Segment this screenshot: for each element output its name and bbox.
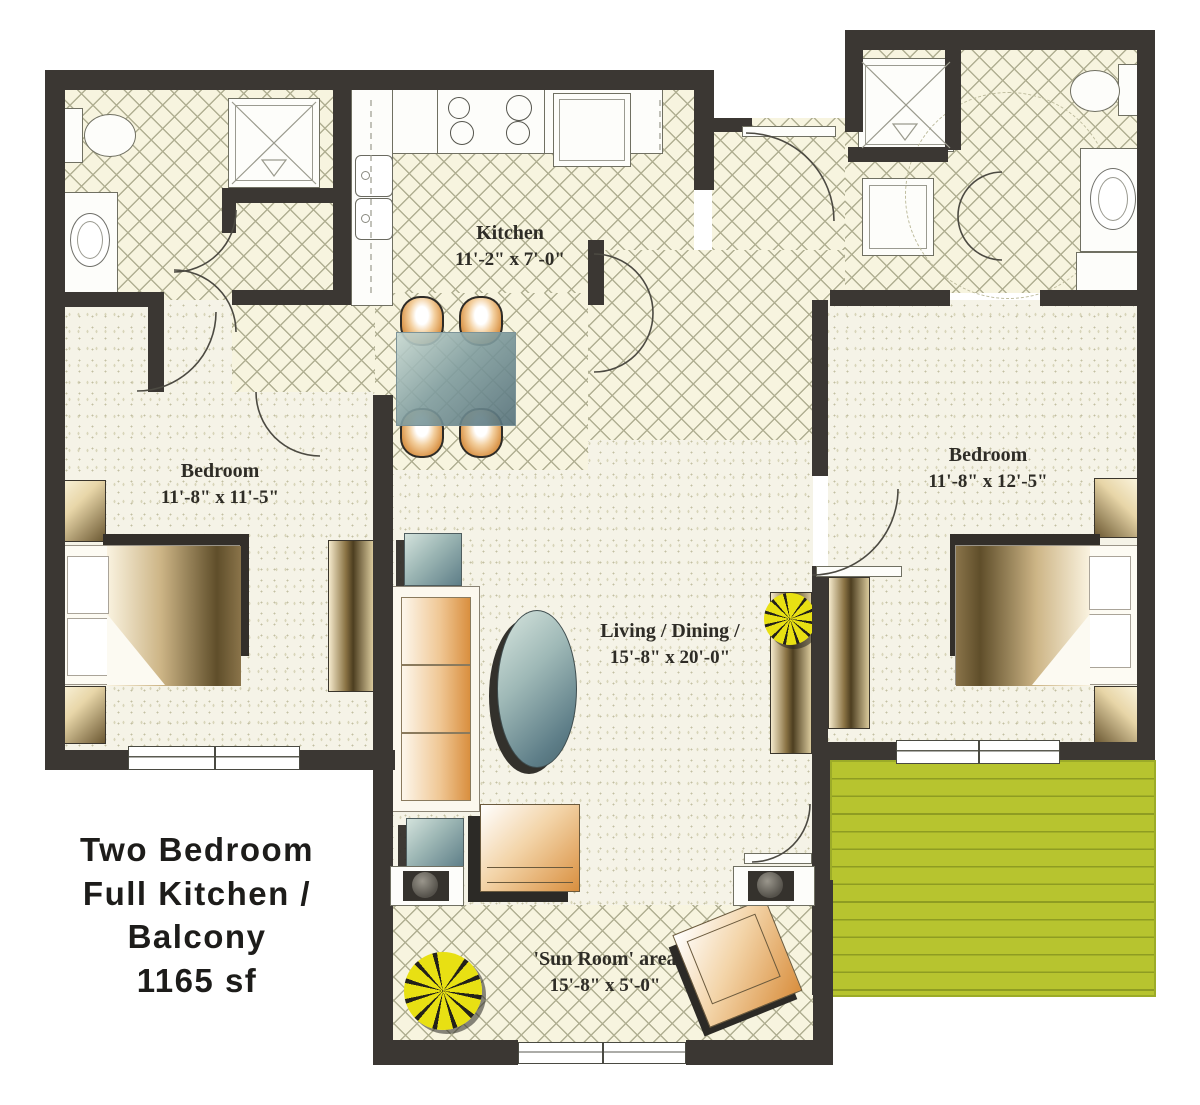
wall: [812, 742, 898, 760]
post-cap: [757, 872, 783, 898]
room-dims: 11'-2" x 7'-0": [400, 247, 620, 273]
window: [518, 1042, 686, 1064]
pillow: [1089, 556, 1131, 610]
drain: [361, 171, 370, 180]
armchair: [480, 804, 580, 892]
sink-right: [1090, 168, 1136, 230]
wall: [945, 50, 961, 150]
sofa-cushion: [401, 733, 471, 801]
wall: [373, 395, 393, 1065]
kitchen-sink-bowl: [355, 155, 393, 197]
balcony-deck: [830, 760, 1156, 997]
door-leaf: [816, 566, 902, 577]
title-line-4: 1165 sf: [42, 959, 352, 1003]
pillow: [67, 618, 109, 676]
room-name: Kitchen: [400, 220, 620, 247]
sun-room-label: 'Sun Room' area 15'-8" x 5'-0": [490, 946, 720, 999]
blanket-fold: [107, 614, 165, 685]
nightstand: [1094, 478, 1140, 538]
wall: [686, 1040, 833, 1065]
wall: [830, 290, 950, 306]
door-leaf: [744, 853, 812, 864]
window-mullion: [602, 1043, 604, 1063]
room-dims: 11'-8" x 12'-5": [878, 469, 1098, 495]
column-post: [403, 871, 449, 901]
burner: [448, 97, 470, 119]
room-name: Bedroom: [878, 442, 1098, 469]
room-dims: 15'-8" x 20'-0": [555, 645, 785, 671]
armchair-seat-line: [487, 867, 573, 883]
end-table: [406, 818, 464, 868]
sun-room-sill-right: [733, 866, 815, 906]
wall: [222, 203, 236, 233]
wall: [1137, 30, 1155, 760]
plant-sun-room: [404, 952, 482, 1030]
plan-title: Two Bedroom Full Kitchen / Balcony 1165 …: [42, 828, 352, 1002]
bedroom-right-label: Bedroom 11'-8" x 12'-5": [878, 442, 1098, 495]
wall: [60, 292, 155, 307]
drain: [361, 214, 370, 223]
blanket-fold: [1032, 614, 1090, 685]
door-leaf: [742, 126, 836, 137]
dining-table: [396, 332, 516, 426]
toilet-tank: [63, 108, 83, 163]
wall: [812, 566, 828, 762]
wall: [45, 70, 65, 770]
sofa-cushion: [401, 597, 471, 665]
room-dims: 11'-8" x 11'-5": [110, 485, 330, 511]
room-name: Bedroom: [110, 458, 330, 485]
burner: [506, 95, 532, 121]
refrigerator: [553, 93, 631, 167]
wall: [222, 188, 334, 203]
refrigerator-inner: [559, 99, 625, 161]
pillow: [67, 556, 109, 614]
sun-room-sill-left: [390, 866, 464, 906]
burner: [506, 121, 530, 145]
kitchen-label: Kitchen 11'-2" x 7'-0": [400, 220, 620, 273]
sofa-cushion: [401, 665, 471, 733]
floor-plan: Kitchen 11'-2" x 7'-0" Bedroom 11'-8" x …: [0, 0, 1200, 1105]
sink-basin: [1098, 177, 1128, 221]
bed-right: [955, 545, 1140, 685]
toilet-bowl: [1070, 70, 1120, 112]
title-line-3: Balcony: [42, 915, 352, 959]
shower-left: [228, 98, 320, 188]
window-mullion: [214, 747, 216, 769]
bedroom-left-label: Bedroom 11'-8" x 11'-5": [110, 458, 330, 511]
sink-left: [70, 213, 110, 267]
shower-pan: [235, 105, 313, 181]
window: [896, 740, 1060, 764]
post-cap: [412, 872, 438, 898]
window: [128, 746, 300, 770]
room-name: Living / Dining /: [555, 618, 785, 645]
kitchen-sink-bowl: [355, 198, 393, 240]
wall: [333, 88, 351, 305]
title-line-1: Two Bedroom: [42, 828, 352, 872]
room-name: 'Sun Room' area: [490, 946, 720, 973]
bed-left: [58, 545, 240, 685]
burner: [450, 121, 474, 145]
wall: [848, 147, 948, 162]
stove: [437, 88, 545, 154]
kitchen-counter-left: [351, 88, 393, 306]
vestibule-floor: [232, 298, 375, 392]
nightstand: [1094, 686, 1140, 744]
wall: [1040, 290, 1140, 306]
sofa: [392, 586, 480, 812]
dresser-right-bedroom: [828, 577, 870, 729]
hall-to-living-floor: [588, 250, 845, 440]
wall: [45, 70, 710, 90]
pillow: [1089, 614, 1131, 668]
wall: [813, 880, 833, 1065]
wall: [373, 1040, 518, 1065]
wall: [845, 30, 1155, 50]
end-table: [404, 533, 462, 586]
living-dining-label: Living / Dining / 15'-8" x 20'-0": [555, 618, 785, 671]
toilet-bowl: [84, 114, 136, 157]
wall: [232, 290, 347, 305]
sink-basin: [77, 221, 103, 259]
wall: [148, 292, 164, 392]
wall: [1060, 742, 1155, 760]
dresser-left-bedroom: [328, 540, 374, 692]
room-dims: 15'-8" x 5'-0": [490, 973, 720, 999]
window-mullion: [978, 741, 980, 763]
column-post: [748, 871, 794, 901]
wall: [812, 300, 828, 476]
title-line-2: Full Kitchen /: [42, 872, 352, 916]
